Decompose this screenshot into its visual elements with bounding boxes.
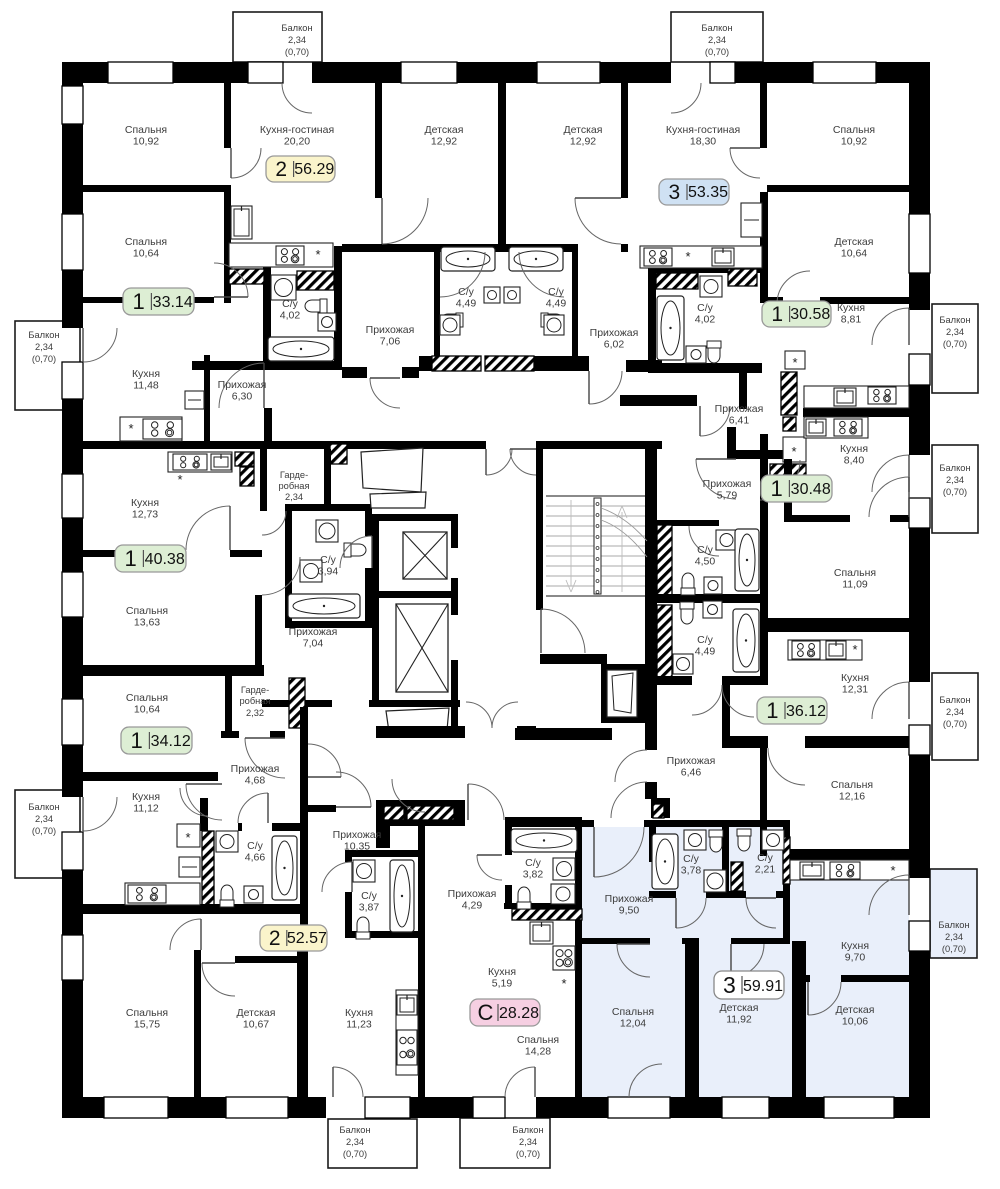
svg-text:4,49: 4,49 (456, 298, 477, 310)
svg-text:(0,70): (0,70) (942, 944, 966, 954)
svg-text:18,30: 18,30 (690, 136, 716, 148)
svg-text:Гарде-: Гарде- (241, 685, 269, 695)
svg-text:2,34: 2,34 (288, 35, 306, 45)
svg-text:11,48: 11,48 (133, 380, 159, 392)
svg-text:10,35: 10,35 (344, 841, 370, 853)
svg-text:*: * (561, 976, 566, 991)
svg-text:С/у: С/у (683, 853, 700, 865)
svg-text:С/у: С/у (525, 857, 542, 869)
svg-text:53.35: 53.35 (688, 184, 728, 201)
svg-text:12,92: 12,92 (570, 136, 596, 148)
svg-text:Балкон: Балкон (938, 920, 969, 930)
svg-text:(0,70): (0,70) (516, 1149, 540, 1159)
svg-text:Кухня: Кухня (837, 302, 865, 314)
svg-text:2,34: 2,34 (346, 1137, 364, 1147)
svg-text:10,06: 10,06 (842, 1016, 868, 1028)
svg-text:12,16: 12,16 (839, 791, 865, 803)
svg-text:10,64: 10,64 (133, 248, 159, 260)
svg-text:28.28: 28.28 (499, 1005, 539, 1022)
svg-text:9,70: 9,70 (845, 952, 866, 964)
svg-text:15,75: 15,75 (134, 1019, 160, 1031)
svg-text:С/у: С/у (757, 852, 774, 864)
svg-text:Прихожая: Прихожая (590, 327, 639, 339)
svg-text:Прихожая: Прихожая (703, 478, 752, 490)
svg-text:7,04: 7,04 (303, 638, 324, 650)
svg-text:Спальня: Спальня (833, 124, 875, 136)
svg-text:Прихожая: Прихожая (667, 755, 716, 767)
svg-text:Спальня: Спальня (126, 1007, 168, 1019)
svg-text:Гарде-: Гарде- (280, 470, 308, 480)
svg-text:Прихожая: Прихожая (605, 893, 654, 905)
svg-text:Кухня: Кухня (488, 966, 516, 978)
svg-text:С/у: С/у (697, 634, 714, 646)
svg-text:2,34: 2,34 (35, 342, 53, 352)
svg-text:Кухня-гостиная: Кухня-гостиная (666, 124, 740, 136)
svg-text:9,50: 9,50 (619, 905, 640, 917)
svg-text:Балкон: Балкон (512, 1125, 543, 1135)
svg-text:14,28: 14,28 (525, 1046, 551, 1058)
svg-text:12,04: 12,04 (620, 1018, 646, 1030)
svg-text:(0,70): (0,70) (32, 826, 56, 836)
svg-text:Балкон: Балкон (28, 802, 59, 812)
svg-text:Спальня: Спальня (126, 605, 168, 617)
svg-text:2,34: 2,34 (946, 327, 964, 337)
svg-text:*: * (852, 642, 857, 657)
svg-text:30.48: 30.48 (791, 481, 831, 498)
svg-text:(0,70): (0,70) (943, 719, 967, 729)
svg-text:3: 3 (723, 972, 736, 998)
svg-text:3,87: 3,87 (359, 902, 380, 914)
svg-text:7,06: 7,06 (380, 336, 401, 348)
svg-text:(0,70): (0,70) (943, 339, 967, 349)
svg-text:1: 1 (766, 698, 778, 723)
svg-text:10,92: 10,92 (133, 136, 159, 148)
svg-text:3,82: 3,82 (523, 869, 544, 881)
svg-text:(0,70): (0,70) (32, 354, 56, 364)
svg-text:12,92: 12,92 (431, 136, 457, 148)
svg-text:20,20: 20,20 (284, 136, 310, 148)
svg-text:Балкон: Балкон (939, 695, 970, 705)
svg-text:Балкон: Балкон (939, 315, 970, 325)
svg-text:Детская: Детская (237, 1007, 276, 1019)
svg-text:Кухня: Кухня (132, 791, 160, 803)
svg-text:4,68: 4,68 (245, 775, 266, 787)
svg-text:С/у: С/у (697, 302, 714, 314)
svg-text:Спальня: Спальня (612, 1006, 654, 1018)
svg-text:12,73: 12,73 (132, 509, 158, 521)
svg-text:4,49: 4,49 (546, 298, 567, 310)
svg-text:Балкон: Балкон (939, 463, 970, 473)
svg-text:С/у: С/у (282, 298, 299, 310)
svg-text:4,02: 4,02 (695, 314, 716, 326)
svg-text:*: * (128, 421, 133, 436)
svg-text:Кухня: Кухня (345, 1007, 373, 1019)
svg-text:4,02: 4,02 (280, 310, 301, 322)
svg-text:2,34: 2,34 (946, 475, 964, 485)
svg-text:Балкон: Балкон (339, 1125, 370, 1135)
svg-text:С/у: С/у (697, 544, 714, 556)
svg-text:Спальня: Спальня (125, 124, 167, 136)
svg-text:5,79: 5,79 (717, 490, 738, 502)
svg-text:3: 3 (669, 181, 681, 204)
svg-text:6,46: 6,46 (681, 767, 702, 779)
svg-text:Прихожая: Прихожая (333, 829, 382, 841)
svg-text:2,34: 2,34 (946, 707, 964, 717)
svg-text:3,78: 3,78 (681, 865, 702, 877)
svg-text:2,34: 2,34 (945, 932, 963, 942)
svg-text:4,50: 4,50 (695, 556, 716, 568)
svg-text:1: 1 (132, 289, 144, 314)
svg-text:1: 1 (771, 303, 783, 326)
svg-text:*: * (792, 355, 797, 370)
svg-text:(0,70): (0,70) (943, 487, 967, 497)
svg-text:Прихожая: Прихожая (289, 626, 338, 638)
svg-text:С/у: С/у (458, 286, 475, 298)
svg-text:Спальня: Спальня (834, 567, 876, 579)
svg-text:59.91: 59.91 (743, 978, 783, 995)
svg-text:13,63: 13,63 (134, 617, 160, 629)
svg-text:30.58: 30.58 (790, 306, 830, 323)
svg-text:(0,70): (0,70) (285, 47, 309, 57)
svg-text:4,29: 4,29 (462, 900, 483, 912)
svg-text:Прихожая: Прихожая (231, 763, 280, 775)
svg-text:11,92: 11,92 (726, 1014, 752, 1026)
svg-text:10,92: 10,92 (841, 136, 867, 148)
svg-text:*: * (791, 444, 796, 459)
svg-text:8,81: 8,81 (841, 314, 862, 326)
svg-text:Балкон: Балкон (701, 23, 732, 33)
svg-text:Кухня: Кухня (841, 672, 869, 684)
svg-text:(0,70): (0,70) (705, 47, 729, 57)
svg-text:С/у: С/у (247, 840, 264, 852)
svg-text:Кухня: Кухня (840, 443, 868, 455)
svg-text:6,30: 6,30 (232, 391, 253, 403)
svg-text:(0,70): (0,70) (343, 1149, 367, 1159)
svg-text:С/у: С/у (320, 554, 337, 566)
svg-text:8,40: 8,40 (844, 455, 865, 467)
svg-text:40.38: 40.38 (145, 551, 185, 568)
svg-text:робная: робная (239, 696, 270, 706)
svg-text:2,34: 2,34 (708, 35, 726, 45)
svg-text:3,94: 3,94 (318, 566, 339, 578)
svg-text:Балкон: Балкон (281, 23, 312, 33)
svg-text:10,64: 10,64 (134, 704, 160, 716)
svg-text:Кухня: Кухня (132, 368, 160, 380)
svg-text:*: * (177, 472, 182, 487)
svg-text:*: * (185, 830, 190, 845)
svg-text:2,34: 2,34 (519, 1137, 537, 1147)
svg-text:робная: робная (278, 481, 309, 491)
svg-text:Детская: Детская (836, 1004, 875, 1016)
svg-text:Прихожая: Прихожая (218, 379, 267, 391)
svg-text:2,32: 2,32 (246, 708, 264, 718)
svg-text:С: С (477, 1000, 493, 1025)
svg-text:Спальня: Спальня (126, 692, 168, 704)
svg-text:11,23: 11,23 (346, 1019, 372, 1031)
svg-text:1: 1 (130, 728, 142, 753)
svg-text:5,19: 5,19 (492, 978, 513, 990)
svg-text:*: * (315, 247, 320, 262)
svg-text:4,66: 4,66 (245, 852, 266, 864)
svg-text:34.12: 34.12 (151, 733, 191, 750)
svg-text:Детская: Детская (564, 124, 603, 136)
svg-text:Кухня: Кухня (131, 497, 159, 509)
svg-text:Спальня: Спальня (517, 1034, 559, 1046)
svg-text:2: 2 (275, 158, 287, 181)
svg-text:Детская: Детская (835, 236, 874, 248)
svg-text:4,49: 4,49 (695, 646, 716, 658)
svg-text:Спальня: Спальня (125, 236, 167, 248)
svg-text:33.14: 33.14 (153, 294, 193, 311)
svg-text:56.29: 56.29 (294, 161, 334, 178)
svg-text:1: 1 (124, 546, 136, 571)
svg-text:11,12: 11,12 (133, 803, 159, 815)
svg-text:2,21: 2,21 (755, 864, 776, 876)
svg-text:2,34: 2,34 (35, 814, 53, 824)
svg-text:Спальня: Спальня (831, 779, 873, 791)
svg-text:11,09: 11,09 (842, 579, 868, 591)
svg-text:Прихожая: Прихожая (366, 324, 415, 336)
svg-text:1: 1 (770, 476, 782, 501)
svg-text:10,64: 10,64 (841, 248, 867, 260)
svg-text:Кухня: Кухня (841, 940, 869, 952)
svg-text:52.57: 52.57 (287, 930, 327, 947)
svg-text:Балкон: Балкон (28, 330, 59, 340)
svg-text:Прихожая: Прихожая (448, 888, 497, 900)
svg-text:2: 2 (269, 927, 281, 950)
svg-text:2,34: 2,34 (285, 492, 303, 502)
svg-text:12,31: 12,31 (842, 684, 868, 696)
svg-text:6,02: 6,02 (604, 339, 625, 351)
svg-text:*: * (890, 863, 895, 878)
svg-text:Прихожая: Прихожая (715, 403, 764, 415)
svg-text:Кухня-гостиная: Кухня-гостиная (260, 124, 334, 136)
svg-text:Детская: Детская (720, 1002, 759, 1014)
svg-text:С/у: С/у (361, 890, 378, 902)
svg-text:С/у: С/у (548, 286, 565, 298)
svg-text:Детская: Детская (425, 124, 464, 136)
svg-text:36.12: 36.12 (786, 703, 826, 720)
svg-text:*: * (685, 249, 690, 264)
svg-text:10,67: 10,67 (243, 1019, 269, 1031)
svg-text:6,41: 6,41 (729, 415, 750, 427)
